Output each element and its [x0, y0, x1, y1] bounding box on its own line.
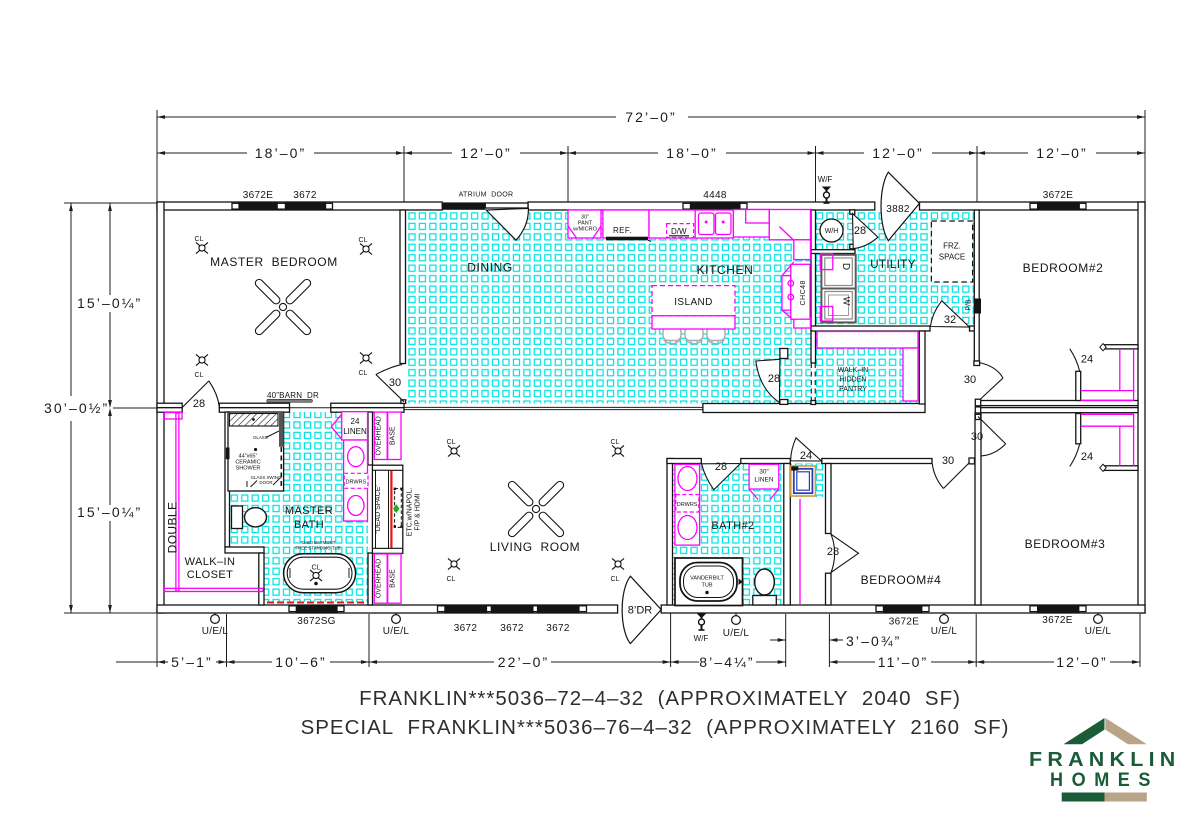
svg-text:LIVING ROOM: LIVING ROOM — [490, 540, 581, 554]
svg-text:CL: CL — [611, 576, 620, 583]
svg-text:CL: CL — [312, 565, 321, 572]
svg-text:MASTER: MASTER — [285, 505, 333, 517]
svg-text:3672SG: 3672SG — [297, 616, 336, 627]
svg-text:U/E/L: U/E/L — [931, 626, 958, 637]
svg-text:30: 30 — [964, 374, 976, 386]
svg-text:GLASS: GLASS — [253, 435, 268, 440]
svg-text:30: 30 — [942, 455, 954, 467]
svg-text:12’–0”: 12’–0” — [872, 145, 924, 161]
svg-text:3672E: 3672E — [243, 190, 273, 201]
svg-text:3672: 3672 — [293, 190, 317, 201]
svg-text:CL: CL — [195, 236, 204, 243]
svg-text:24: 24 — [1081, 354, 1093, 366]
svg-text:U/E/L: U/E/L — [1085, 626, 1112, 637]
svg-text:SPACE: SPACE — [939, 253, 966, 262]
svg-text:PANTRY: PANTRY — [839, 386, 867, 393]
svg-text:W/F: W/F — [694, 634, 709, 643]
svg-text:12’–0”: 12’–0” — [460, 145, 512, 161]
svg-text:#2400 BAYMONT: #2400 BAYMONT — [301, 540, 336, 545]
svg-text:DRWRS: DRWRS — [346, 480, 367, 486]
svg-text:28: 28 — [827, 546, 839, 558]
svg-text:72’–0”: 72’–0” — [625, 109, 677, 125]
svg-text:CL: CL — [611, 439, 620, 446]
svg-text:U/E/L: U/E/L — [383, 626, 410, 637]
svg-text:BATH#2: BATH#2 — [711, 520, 754, 532]
svg-text:3672E: 3672E — [1043, 190, 1073, 201]
svg-text:5’–1”: 5’–1” — [171, 654, 213, 670]
svg-text:3672E: 3672E — [1042, 615, 1072, 626]
svg-text:24: 24 — [800, 450, 812, 462]
svg-text:OVERHEAD: OVERHEAD — [376, 416, 383, 455]
svg-text:32: 32 — [944, 314, 956, 326]
svg-text:P/B: P/B — [966, 299, 973, 311]
svg-text:8’–4¼”: 8’–4¼” — [699, 654, 754, 670]
svg-text:D: D — [840, 263, 851, 270]
svg-text:DOUBLE: DOUBLE — [166, 502, 180, 554]
svg-text:W/F: W/F — [818, 175, 833, 184]
svg-text:BEDROOM#2: BEDROOM#2 — [1023, 261, 1104, 275]
svg-text:22’–0”: 22’–0” — [498, 654, 550, 670]
svg-text:FRZ.: FRZ. — [943, 242, 961, 251]
svg-text:28: 28 — [193, 398, 205, 410]
svg-text:12’–0”: 12’–0” — [1056, 654, 1108, 670]
svg-text:3672: 3672 — [546, 623, 570, 634]
svg-text:24: 24 — [351, 417, 360, 426]
svg-text:BEDROOM#3: BEDROOM#3 — [1025, 537, 1106, 551]
svg-text:FRANKLIN***5036–72–4–32 (APPR: FRANKLIN***5036–72–4–32 (APPROXIMATELY 2… — [359, 687, 961, 710]
svg-text:30: 30 — [971, 431, 983, 443]
svg-text:CL: CL — [447, 439, 456, 446]
svg-text:HOMES: HOMES — [1050, 770, 1159, 791]
svg-text:CL: CL — [359, 237, 368, 244]
svg-text:30’–0½”: 30’–0½” — [44, 400, 109, 416]
svg-text:CL: CL — [359, 370, 368, 377]
svg-text:28: 28 — [854, 225, 866, 237]
svg-text:BASE: BASE — [389, 426, 396, 445]
svg-text:3672: 3672 — [500, 623, 524, 634]
svg-text:w/MICRO: w/MICRO — [572, 227, 598, 233]
svg-text:D/W: D/W — [671, 227, 687, 236]
svg-text:UTILITY: UTILITY — [870, 259, 916, 271]
svg-text:REF.: REF. — [613, 226, 632, 235]
svg-text:CL: CL — [195, 372, 204, 379]
svg-text:U/E/L: U/E/L — [202, 626, 229, 637]
svg-text:WALK–IN: WALK–IN — [838, 367, 868, 374]
svg-text:DINING: DINING — [467, 261, 513, 275]
svg-text:3’–0¾”: 3’–0¾” — [846, 633, 901, 649]
svg-text:12’–0”: 12’–0” — [1036, 145, 1088, 161]
svg-text:“DEAD SPACE”: “DEAD SPACE” — [375, 484, 382, 534]
svg-text:LINEN: LINEN — [343, 427, 367, 436]
svg-text:15’–0¼”: 15’–0¼” — [77, 504, 142, 520]
svg-text:DRWRS: DRWRS — [677, 502, 698, 508]
svg-text:TUB: TUB — [702, 583, 713, 589]
svg-text:30: 30 — [389, 377, 401, 389]
svg-text:ATRIUM DOOR: ATRIUM DOOR — [459, 192, 514, 199]
svg-text:SHOWER: SHOWER — [236, 466, 261, 472]
svg-text:10’–6”: 10’–6” — [275, 654, 327, 670]
svg-text:40”BARN DR: 40”BARN DR — [267, 391, 319, 400]
svg-text:28: 28 — [715, 461, 727, 473]
svg-text:30”: 30” — [759, 469, 768, 476]
svg-text:BASE: BASE — [389, 569, 396, 588]
svg-text:CHC48: CHC48 — [800, 280, 807, 305]
svg-text:3672E: 3672E — [889, 617, 919, 628]
svg-text:11’–0”: 11’–0” — [878, 654, 928, 670]
svg-text:W/H: W/H — [825, 228, 839, 235]
svg-text:BEDROOM#4: BEDROOM#4 — [861, 573, 942, 587]
svg-text:3882: 3882 — [886, 204, 910, 215]
svg-text:LINEN: LINEN — [754, 477, 773, 484]
svg-text:HIDDEN: HIDDEN — [840, 377, 867, 384]
svg-text:CL: CL — [447, 576, 456, 583]
svg-text:3672: 3672 — [454, 623, 478, 634]
svg-text:18’–0”: 18’–0” — [255, 145, 307, 161]
svg-text:FREE STANDING TUB: FREE STANDING TUB — [295, 546, 340, 551]
svg-text:CLOSET: CLOSET — [187, 569, 233, 581]
svg-text:DOOR: DOOR — [259, 480, 272, 485]
svg-text:28: 28 — [768, 373, 780, 385]
svg-text:ETC.w/NAPOL.: ETC.w/NAPOL. — [407, 488, 414, 537]
svg-text:W: W — [842, 297, 852, 306]
svg-text:MASTER BEDROOM: MASTER BEDROOM — [210, 255, 338, 269]
svg-text:F/P & HDMI: F/P & HDMI — [415, 493, 422, 530]
svg-text:KITCHEN: KITCHEN — [697, 263, 754, 277]
svg-text:FRANKLIN: FRANKLIN — [1029, 748, 1181, 771]
svg-text:WALK–IN: WALK–IN — [185, 556, 236, 568]
svg-text:8’DR: 8’DR — [628, 605, 653, 617]
svg-text:U/E/L: U/E/L — [723, 628, 750, 639]
svg-text:18’–0”: 18’–0” — [666, 145, 718, 161]
svg-text:ISLAND: ISLAND — [674, 297, 713, 308]
svg-text:15’–0¼”: 15’–0¼” — [77, 295, 142, 311]
svg-text:SPECIAL FRANKLIN***5036–76–4–: SPECIAL FRANKLIN***5036–76–4–32 (APPROXI… — [301, 716, 1010, 739]
svg-text:24: 24 — [1081, 451, 1093, 463]
svg-text:BATH: BATH — [294, 519, 324, 531]
svg-text:VANDERBILT: VANDERBILT — [690, 576, 724, 582]
svg-text:4448: 4448 — [703, 190, 727, 201]
svg-text:OVERHEAD: OVERHEAD — [376, 559, 383, 598]
